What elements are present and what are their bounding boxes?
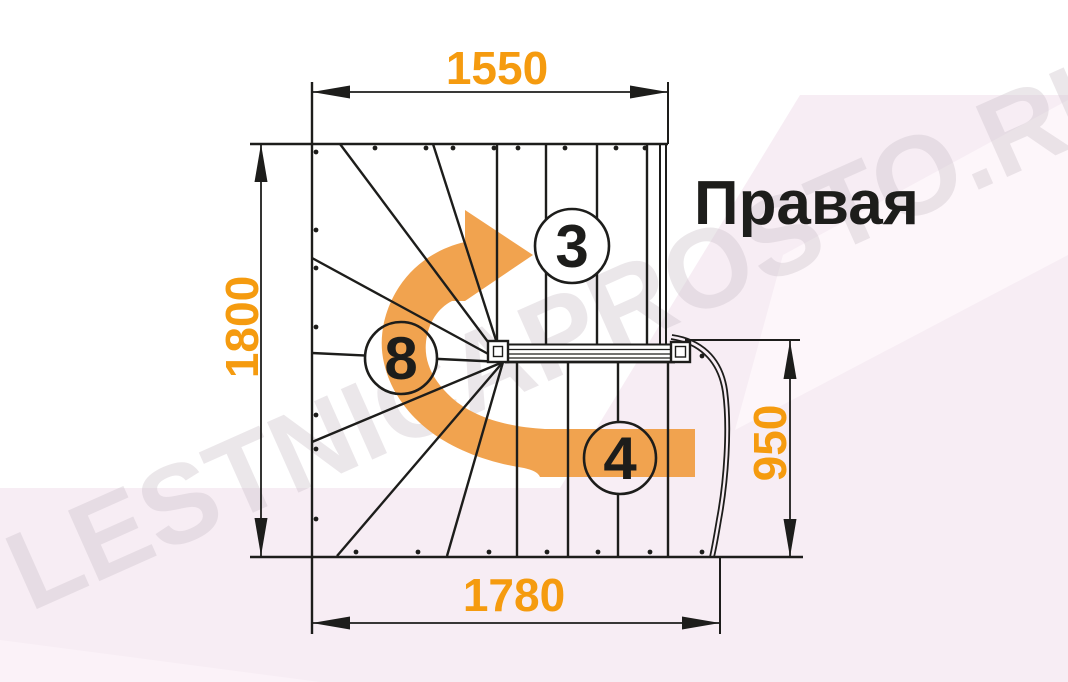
dimension-arrowhead xyxy=(255,144,268,182)
step-count-upper: 3 xyxy=(535,209,609,283)
dimension-arrowhead xyxy=(312,86,350,99)
step-count-upper-label: 3 xyxy=(555,213,588,280)
step-count-winder-label: 8 xyxy=(384,325,417,392)
page-title: Правая xyxy=(694,169,919,238)
right-newel-post xyxy=(671,342,690,362)
dimension-left-value: 1800 xyxy=(216,276,268,378)
center-newel-post xyxy=(488,341,508,362)
dimension-right-value: 950 xyxy=(744,405,796,482)
landing-bar xyxy=(505,344,675,363)
dimension-bottom-value: 1780 xyxy=(463,569,565,621)
staircase-plan-image: LESTNICAPROSTO.RU xyxy=(0,0,1068,682)
step-count-lower-label: 4 xyxy=(603,425,637,492)
staircase-plan-svg: LESTNICAPROSTO.RU xyxy=(0,0,1068,682)
dimension-arrowhead xyxy=(630,86,668,99)
dimension-top-value: 1550 xyxy=(446,42,548,94)
dimension-top: 1550 xyxy=(312,42,668,99)
